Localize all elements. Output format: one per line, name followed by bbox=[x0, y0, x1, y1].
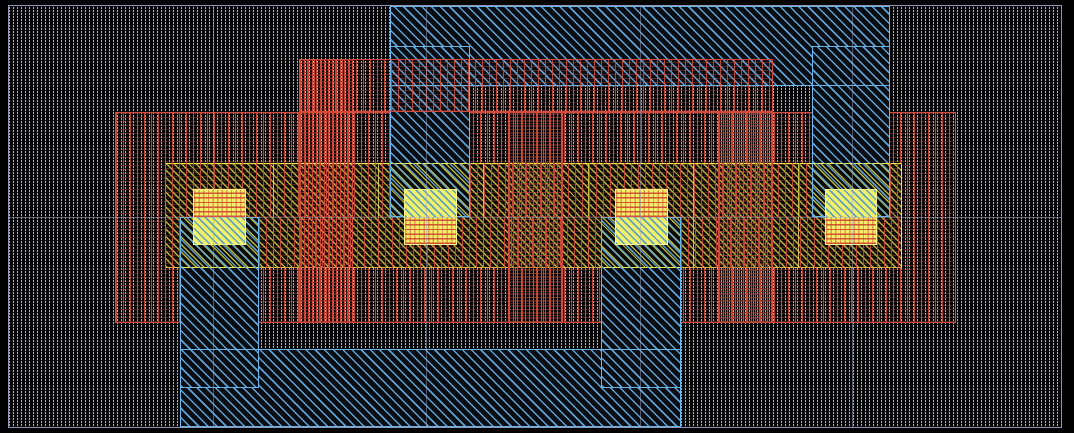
contact-3-metal-half[interactable] bbox=[615, 217, 668, 245]
metal-rail-bottom-outline bbox=[180, 349, 681, 427]
contact-4-poly-half[interactable] bbox=[825, 217, 877, 245]
poly-gate-1[interactable] bbox=[299, 59, 353, 323]
grid-line-horizontal-1 bbox=[8, 217, 1062, 218]
contact-1-metal-half[interactable] bbox=[193, 217, 246, 245]
contact-4-metal-half[interactable] bbox=[825, 189, 877, 217]
contact-2-metal-half[interactable] bbox=[404, 189, 457, 217]
contact-1-poly-half[interactable] bbox=[193, 189, 246, 217]
contact-3-poly-half[interactable] bbox=[615, 189, 668, 217]
contact-2-poly-half[interactable] bbox=[404, 217, 457, 245]
poly-over-diffusion-4[interactable] bbox=[165, 217, 180, 268]
poly-top-strap[interactable] bbox=[299, 59, 773, 112]
poly-over-diffusion-3[interactable] bbox=[890, 163, 902, 217]
layout-canvas[interactable] bbox=[0, 0, 1074, 433]
